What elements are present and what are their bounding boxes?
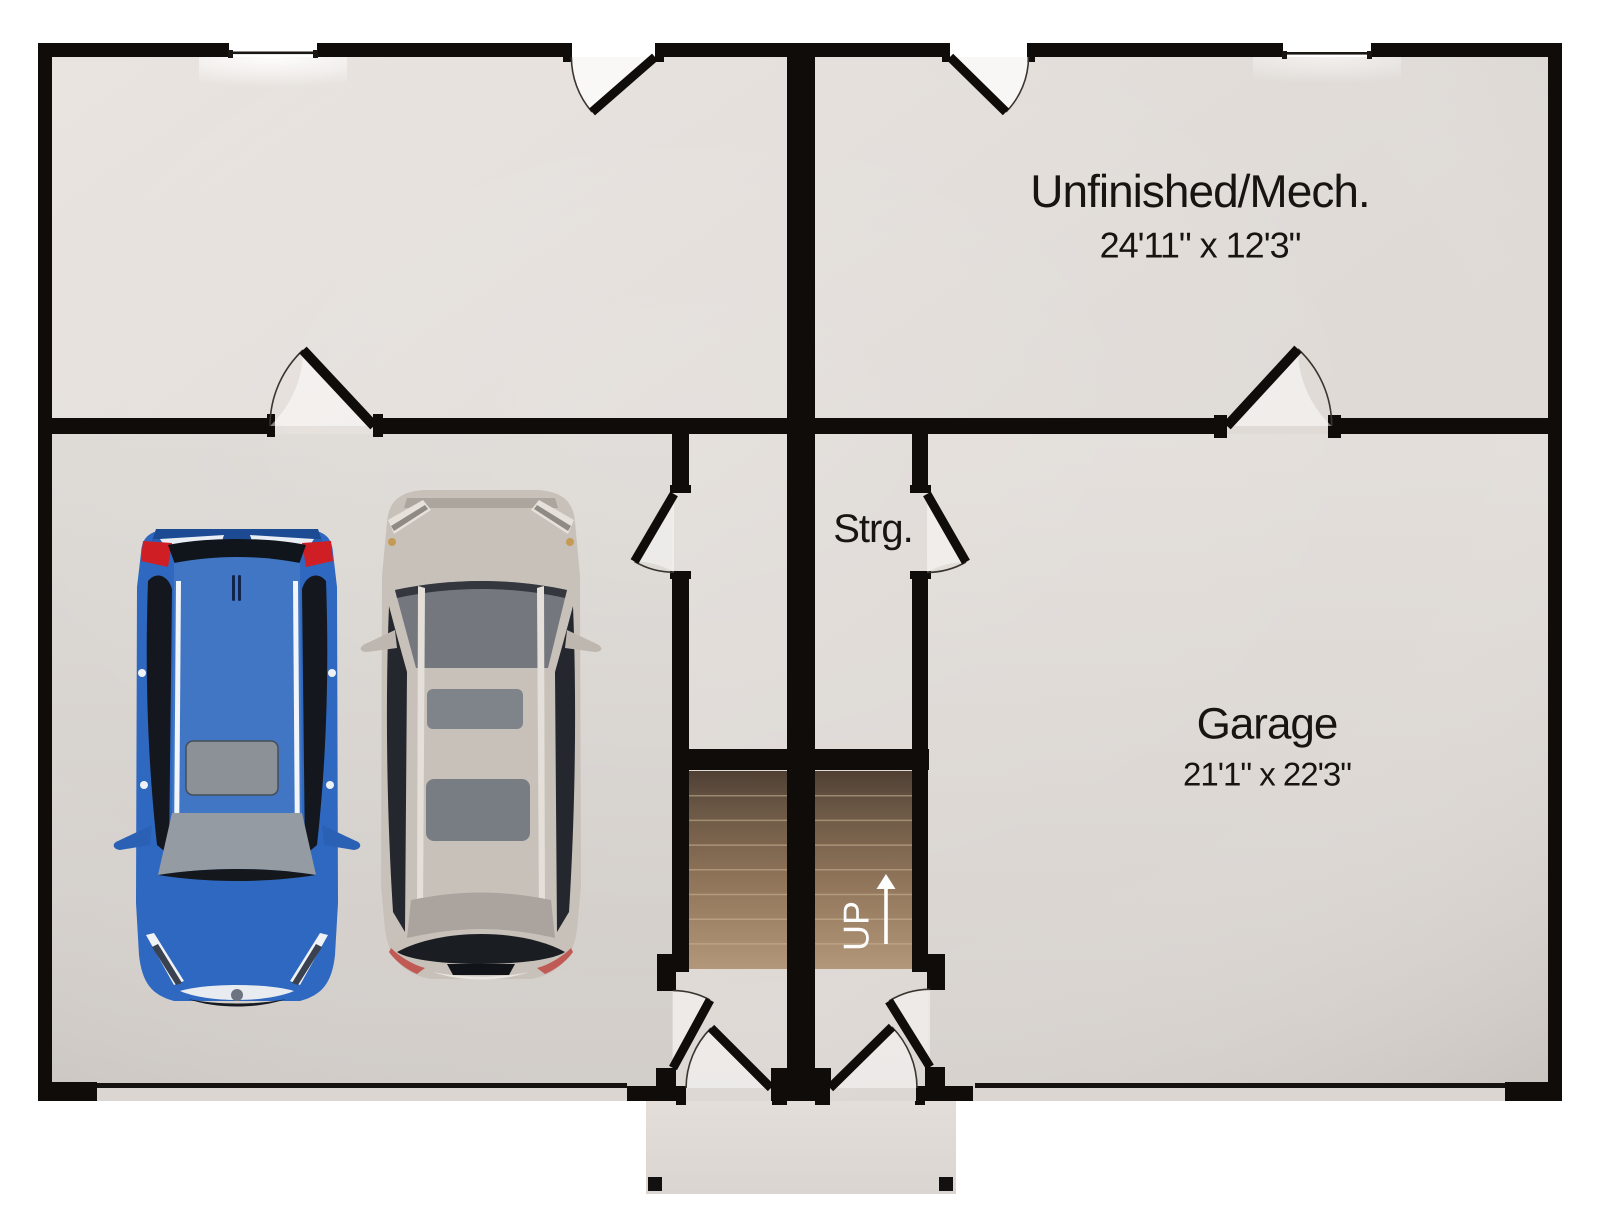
svg-text:24'11" x 12'3": 24'11" x 12'3" — [1100, 225, 1301, 266]
svg-text:Strg.: Strg. — [833, 507, 912, 551]
svg-text:UP: UP — [836, 901, 877, 951]
svg-text:21'1" x 22'3": 21'1" x 22'3" — [1183, 756, 1351, 793]
svg-text:Garage: Garage — [1197, 700, 1338, 749]
svg-text:Unfinished/Mech.: Unfinished/Mech. — [1030, 165, 1369, 217]
